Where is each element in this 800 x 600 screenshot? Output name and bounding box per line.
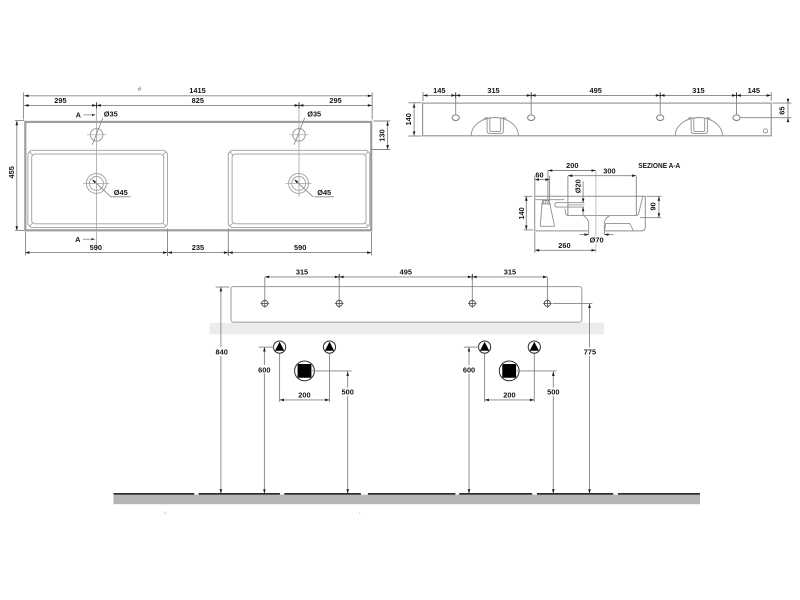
svg-text:455: 455	[7, 166, 16, 178]
svg-text:200: 200	[298, 390, 310, 399]
svg-text:600: 600	[258, 365, 270, 374]
svg-text:#: #	[138, 86, 142, 93]
svg-text:590: 590	[294, 243, 306, 252]
svg-text:60: 60	[535, 170, 543, 179]
svg-text:145: 145	[433, 86, 445, 95]
svg-text:200: 200	[503, 390, 515, 399]
svg-text:A: A	[75, 235, 81, 244]
svg-text:590: 590	[90, 243, 102, 252]
svg-text:500: 500	[547, 388, 559, 397]
svg-text:Ø70: Ø70	[590, 235, 604, 244]
svg-text:Ø20: Ø20	[573, 179, 582, 193]
svg-text:840: 840	[216, 347, 228, 356]
svg-text:775: 775	[584, 347, 596, 356]
svg-text:Ø45: Ø45	[114, 188, 128, 197]
svg-text:A: A	[76, 111, 82, 120]
svg-text:SEZIONE A-A: SEZIONE A-A	[638, 161, 680, 170]
svg-text:≈: ≈	[164, 511, 167, 517]
svg-text:· •: · •	[356, 511, 361, 517]
svg-text:825: 825	[192, 96, 204, 105]
svg-text:495: 495	[590, 86, 602, 95]
svg-text:200: 200	[566, 161, 578, 170]
svg-text:300: 300	[603, 166, 615, 175]
svg-text:315: 315	[487, 86, 499, 95]
svg-text:90: 90	[649, 202, 658, 210]
svg-text:Ø35: Ø35	[104, 110, 118, 119]
svg-text:295: 295	[54, 96, 66, 105]
svg-text:495: 495	[400, 267, 412, 276]
svg-text:1415: 1415	[189, 86, 205, 95]
svg-text:65: 65	[778, 106, 787, 114]
svg-text:315: 315	[504, 267, 516, 276]
svg-text:315: 315	[692, 86, 704, 95]
svg-text:600: 600	[463, 365, 475, 374]
svg-text:145: 145	[748, 86, 760, 95]
svg-text:315: 315	[296, 267, 308, 276]
svg-text:140: 140	[404, 113, 413, 125]
svg-text:140: 140	[517, 207, 526, 219]
svg-text:130: 130	[378, 129, 387, 141]
svg-text:Ø35: Ø35	[307, 110, 321, 119]
svg-text:Ø45: Ø45	[317, 188, 331, 197]
svg-text:235: 235	[192, 243, 204, 252]
svg-text:500: 500	[342, 388, 354, 397]
svg-text:260: 260	[558, 241, 570, 250]
svg-text:295: 295	[329, 96, 341, 105]
